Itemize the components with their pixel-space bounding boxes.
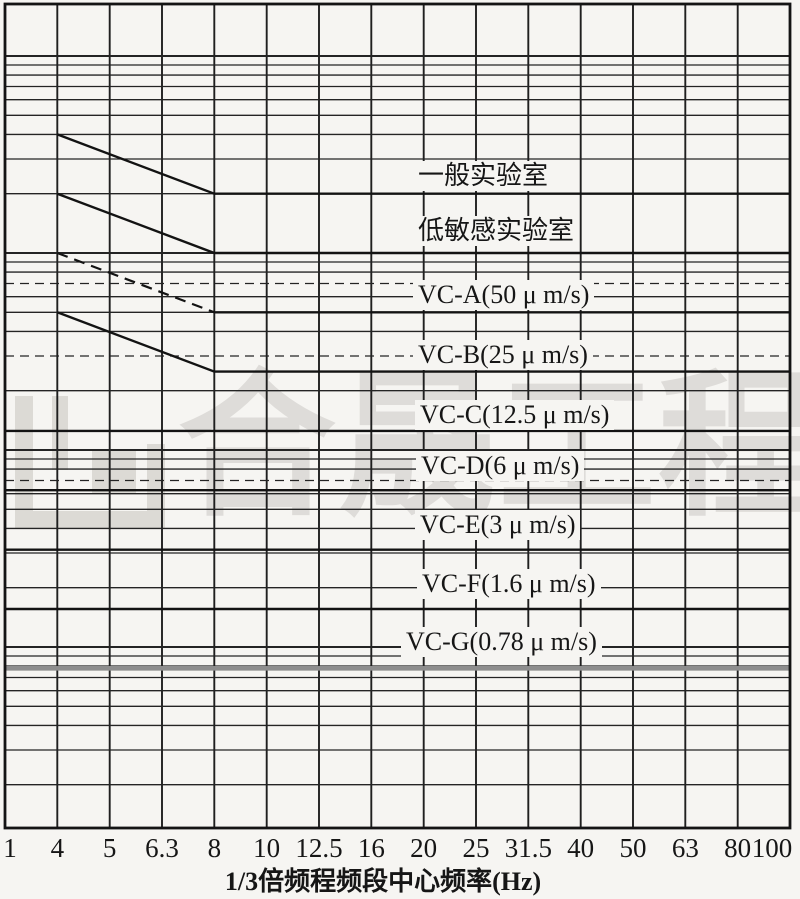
- curve-label-vc-g: VC-G(0.78 μ m/s): [401, 627, 602, 657]
- chart-svg: [0, 0, 800, 894]
- x-axis-title: 1/3倍频程频段中心频率(Hz): [0, 861, 783, 898]
- x-tick-1: 1: [3, 834, 17, 862]
- curve-label-vc-f: VC-F(1.6 μ m/s): [417, 569, 601, 599]
- plot-area: [0, 0, 800, 894]
- x-tick-10: 10: [253, 834, 280, 862]
- x-tick-80: 80: [724, 834, 751, 862]
- curve-label-vc-c: VC-C(12.5 μ m/s): [415, 400, 614, 430]
- curve-label-vc-b: VC-B(25 μ m/s): [413, 340, 593, 370]
- x-tick-4: 4: [51, 834, 65, 862]
- x-tick-5: 5: [103, 834, 117, 862]
- x-tick-40: 40: [567, 834, 594, 862]
- x-tick-63: 63: [672, 834, 699, 862]
- x-tick-50: 50: [620, 834, 647, 862]
- curve-label-general-lab: 一般实验室: [413, 161, 553, 191]
- x-tick-12.5: 12.5: [295, 834, 342, 862]
- x-tick-25: 25: [463, 834, 490, 862]
- vibration-criteria-chart: 合晟工程 一般实验室低敏感实验室VC-A(50 μ m/s)VC-B(25 μ …: [0, 0, 800, 894]
- vertical-gridlines: [57, 4, 737, 828]
- x-tick-16: 16: [358, 834, 385, 862]
- x-tick-31.5: 31.5: [505, 834, 552, 862]
- curve-label-low-sensitive-lab: 低敏感实验室: [413, 216, 579, 246]
- x-tick-20: 20: [410, 834, 437, 862]
- x-tick-6.3: 6.3: [145, 834, 179, 862]
- plot-border: [5, 4, 790, 828]
- x-tick-8: 8: [208, 834, 222, 862]
- x-tick-100: 100: [752, 834, 793, 862]
- curve-label-vc-a: VC-A(50 μ m/s): [413, 280, 594, 310]
- curve-label-vc-e: VC-E(3 μ m/s): [415, 510, 580, 540]
- horizontal-gridlines: [5, 56, 790, 785]
- curve-label-vc-d: VC-D(6 μ m/s): [416, 451, 584, 481]
